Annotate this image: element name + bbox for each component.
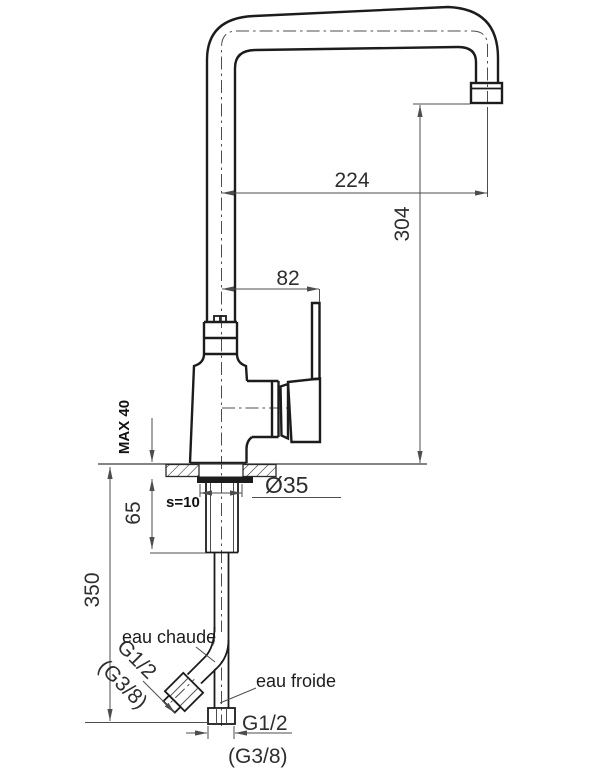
leader-cold-water <box>220 688 256 703</box>
lever-hub <box>288 379 320 443</box>
label-cold-water: eau froide <box>256 671 336 691</box>
lever-blade <box>312 303 320 379</box>
dim-hose-length: 350 <box>81 572 104 607</box>
dim-handle-offset: 82 <box>276 267 299 290</box>
dim-cold-thread: G1/2 <box>242 712 288 735</box>
drawing-canvas: 224 304 82 MAX 40 65 350 Ø35 s=10 eau ch… <box>0 0 600 780</box>
dim-spout-height: 304 <box>391 206 414 241</box>
faucet-technical-drawing: 224 304 82 MAX 40 65 350 Ø35 s=10 eau ch… <box>0 0 600 780</box>
dim-hole-diameter: Ø35 <box>265 472 308 498</box>
spout-outer-edge <box>207 7 498 322</box>
dim-cold-thread-alt: (G3/8) <box>228 745 288 768</box>
dim-shank-length: 65 <box>122 501 145 524</box>
dim-max-thickness: MAX 40 <box>116 400 133 454</box>
lever-handle <box>281 303 321 442</box>
slab-hatch-left <box>166 465 199 477</box>
dim-washer-thickness: s=10 <box>166 494 200 511</box>
dim-spout-reach: 224 <box>334 169 369 192</box>
mounting-washer <box>197 477 253 484</box>
faucet-body <box>190 316 279 463</box>
main-centerline <box>222 31 488 726</box>
cartridge-cover <box>281 384 289 439</box>
aerator <box>471 83 502 103</box>
